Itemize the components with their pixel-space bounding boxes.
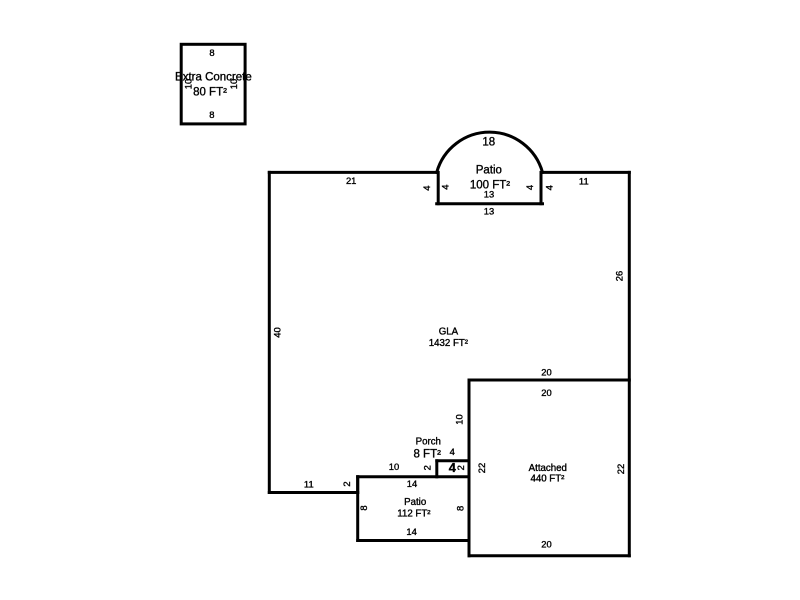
- svg-text:8 FT²: 8 FT²: [413, 448, 441, 460]
- svg-text:13: 13: [484, 205, 494, 216]
- svg-text:440 FT²: 440 FT²: [530, 473, 565, 484]
- svg-text:8: 8: [454, 506, 465, 511]
- svg-text:21: 21: [346, 175, 356, 186]
- svg-text:112 FT²: 112 FT²: [397, 509, 431, 520]
- svg-text:11: 11: [304, 478, 314, 489]
- svg-text:Extra Concrete: Extra Concrete: [175, 71, 252, 83]
- svg-text:2: 2: [455, 465, 466, 470]
- svg-text:Patio: Patio: [404, 497, 426, 508]
- svg-text:22: 22: [476, 463, 487, 473]
- svg-text:11: 11: [579, 175, 589, 186]
- svg-text:1432 FT²: 1432 FT²: [429, 338, 469, 349]
- svg-text:20: 20: [541, 367, 551, 378]
- svg-text:20: 20: [541, 387, 551, 398]
- svg-text:22: 22: [615, 464, 626, 474]
- svg-text:14: 14: [407, 478, 417, 489]
- svg-text:80 FT²: 80 FT²: [193, 87, 227, 99]
- svg-text:4: 4: [439, 184, 450, 189]
- svg-text:20: 20: [541, 539, 551, 550]
- svg-text:40: 40: [272, 327, 283, 337]
- svg-text:26: 26: [614, 271, 625, 281]
- svg-text:10: 10: [389, 461, 399, 472]
- svg-text:14: 14: [406, 526, 416, 537]
- svg-text:4: 4: [524, 185, 535, 190]
- svg-text:10: 10: [454, 414, 465, 424]
- svg-text:18: 18: [482, 137, 495, 149]
- svg-text:Patio: Patio: [476, 164, 502, 176]
- svg-text:Porch: Porch: [416, 436, 441, 447]
- svg-text:4: 4: [543, 185, 554, 190]
- svg-text:2: 2: [341, 481, 352, 486]
- svg-text:8: 8: [358, 505, 369, 510]
- svg-text:Attached: Attached: [529, 463, 567, 474]
- svg-text:4: 4: [450, 446, 455, 457]
- svg-text:13: 13: [484, 188, 494, 199]
- svg-text:GLA: GLA: [439, 327, 459, 338]
- svg-text:4: 4: [421, 185, 432, 190]
- svg-text:8: 8: [209, 109, 214, 120]
- svg-text:8: 8: [209, 47, 214, 58]
- svg-text:2: 2: [422, 465, 433, 470]
